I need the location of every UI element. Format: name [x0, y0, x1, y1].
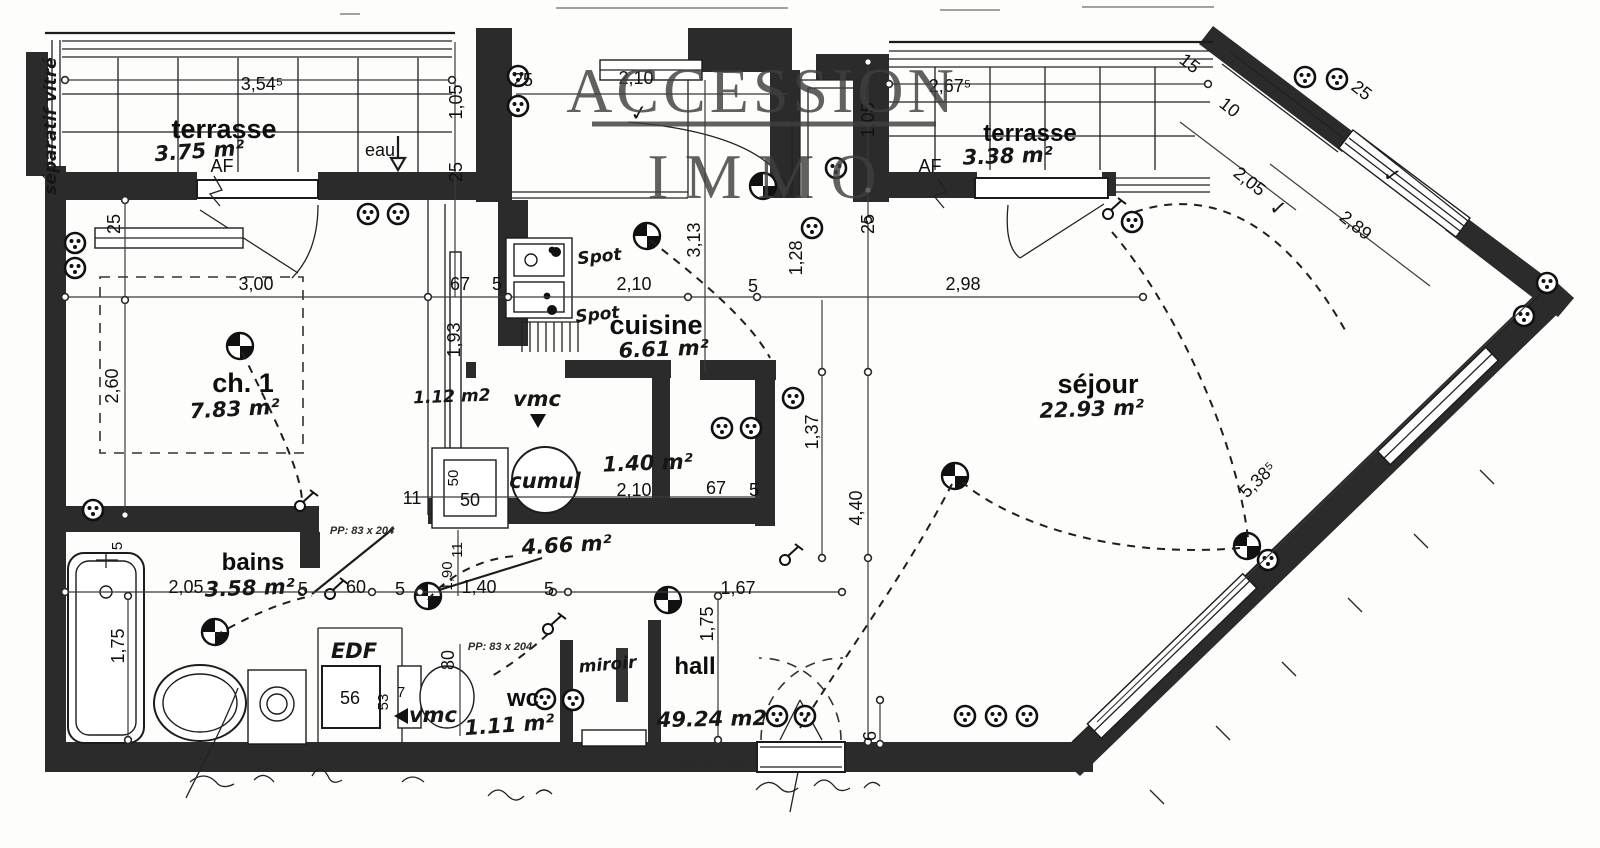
dim-diag-15: 15: [1176, 49, 1204, 77]
socket-icon: [741, 418, 761, 438]
dim-gaine-50b: 50: [445, 470, 462, 487]
ceiling-light-icon: [227, 333, 253, 359]
dim-ch1-width: 3,00: [238, 274, 273, 294]
area-degagement: 4.66 m²: [520, 531, 613, 560]
dim-k5: 5: [748, 276, 758, 296]
ceiling-light-icon: [202, 619, 228, 645]
switch-icon: [780, 544, 803, 565]
socket-icon: [388, 204, 408, 224]
socket-icon: [783, 388, 803, 408]
watermark-line2: IMMO: [647, 141, 892, 212]
dim-edf-53: 53: [375, 694, 392, 711]
dim-193: 1,93: [444, 322, 464, 357]
dim-105-left: 1,05: [446, 84, 466, 119]
dim-low-210: 2,10: [616, 480, 651, 500]
hall-shelf: [582, 730, 646, 746]
spot-light-2: [547, 305, 557, 315]
radiator-sejour-low: [1087, 574, 1256, 738]
dim-kitchen-width: 2,10: [616, 274, 651, 294]
dim-b60: 60: [346, 577, 366, 597]
floorplan-drawing: 3,54⁵ 25 2,10 2,67⁵ 1,05 25 1,05 25 15 2…: [0, 0, 1600, 848]
dim-6: 6: [860, 731, 880, 741]
socket-icon: [986, 706, 1006, 726]
dim-gaine-50: 50: [460, 490, 480, 510]
note-af-right: AF: [918, 156, 941, 176]
socket-icon: [65, 233, 85, 253]
note-separatif-vitre: séparatif vitré: [41, 57, 61, 195]
socket-icon: [712, 418, 732, 438]
dim-wc-80: 80: [438, 650, 458, 670]
area-sejour: 22.93 m²: [1039, 395, 1145, 423]
dim-hall-175: 1,75: [697, 606, 717, 641]
socket-icon: [1537, 273, 1557, 293]
area-bains: 3.58 m²: [204, 574, 296, 601]
note-spot-1: Spot: [576, 245, 623, 270]
dim-5: 5: [492, 274, 502, 294]
note-pp83-bains: PP: 83 x 204: [330, 525, 394, 537]
floorplan-scan: 3,54⁵ 25 2,10 2,67⁵ 1,05 25 1,05 25 15 2…: [0, 0, 1600, 848]
note-vmc-cuisine: vmc: [513, 387, 562, 411]
dim-gaine-11: 11: [403, 488, 422, 508]
spot-light-1: [551, 247, 561, 257]
dim-corr-5: 5: [544, 579, 554, 599]
socket-icon: [508, 96, 528, 116]
socket-icon: [65, 258, 85, 278]
area-placard: 1.12 m2: [413, 386, 491, 409]
note-pp83-wc: PP: 83 x 204: [468, 641, 532, 653]
dim-25-left: 25: [446, 162, 466, 182]
socket-icon: [1017, 706, 1037, 726]
dim-diag-289: 2,89: [1336, 207, 1376, 244]
dim-wc-190: 1,90: [439, 561, 456, 590]
dim-ch1-25: 25: [104, 214, 124, 234]
label-ch1: ch. 1: [212, 368, 274, 398]
dim-corr-140: 1,40: [461, 577, 496, 597]
socket-icon: [358, 204, 378, 224]
socket-icon: [1258, 550, 1278, 570]
note-eau: eau: [365, 140, 395, 160]
dim-b5b: 5: [395, 579, 405, 599]
dim-ch1-height: 2,60: [102, 368, 122, 403]
dim-sejour-298: 2,98: [945, 274, 980, 294]
dim-137: 1,37: [802, 414, 822, 449]
area-hall: 49.24 m2: [656, 706, 768, 732]
label-sejour: séjour: [1057, 369, 1139, 399]
dim-bains-175: 1,75: [108, 628, 128, 663]
bed-outline: [100, 277, 303, 453]
dim-diag-205: 2,05: [1230, 163, 1270, 200]
scan-edge-lines: [340, 7, 1214, 14]
ceiling-light-icon: [942, 463, 968, 489]
note-miroir: miroir: [578, 652, 639, 677]
dim-b5a: 5: [298, 579, 308, 599]
socket-icon: [1295, 67, 1315, 87]
note-pp93-entrance: PP: 93 x 204: [680, 758, 744, 770]
kitchen-radiator: [520, 322, 580, 352]
area-terrasse-right: 3.38 m²: [962, 142, 1054, 169]
label-hall: hall: [674, 653, 715, 680]
dim-25: 25: [513, 70, 533, 90]
ceiling-light-icon: [634, 223, 660, 249]
switch-icon: [543, 613, 566, 634]
dim-terrasse-left-width: 3,54⁵: [241, 74, 284, 94]
socket-icon: [795, 706, 815, 726]
radiator-sejour-high: [1378, 347, 1498, 464]
area-wc: 1.11 m²: [464, 710, 556, 740]
fixtures: [68, 136, 1498, 804]
area-cuisine: 6.61 m²: [618, 335, 710, 362]
dim-edf-56: 56: [340, 688, 360, 708]
socket-icon: [83, 500, 103, 520]
ceiling-light-icon: [655, 587, 681, 613]
dim-440: 4,40: [846, 490, 866, 525]
door-terrasse-right: [975, 178, 1108, 198]
socket-icon: [955, 706, 975, 726]
label-bains: bains: [222, 549, 285, 576]
note-edf: EDF: [331, 639, 378, 663]
socket-icon: [1327, 69, 1347, 89]
dim-edf-7: 7: [397, 684, 405, 701]
dim-313: 3,13: [684, 222, 704, 257]
dim-128: 1,28: [786, 240, 806, 275]
dim-diag-5385: 5,38⁵: [1236, 458, 1280, 502]
socket-icon: [767, 706, 787, 726]
note-af-left: AF: [210, 156, 233, 176]
dim-low-67: 67: [706, 478, 726, 498]
dim-diag-25: 25: [1348, 76, 1376, 104]
dim-bains-205: 2,05: [168, 577, 203, 597]
dim-25-right: 25: [858, 214, 878, 234]
dim-67: 67: [450, 274, 470, 294]
socket-icon: [563, 690, 583, 710]
dim-bains-5top: 5: [109, 542, 126, 550]
door-terrasse-left: [197, 180, 318, 198]
socket-icon: [802, 218, 822, 238]
dim-gaine-11b: 11: [449, 542, 466, 558]
dim-corr-167: 1,67: [720, 578, 755, 598]
note-vmc-bains: vmc: [409, 703, 458, 727]
dim-low-5: 5: [749, 480, 759, 500]
area-cellier: 1.40 m²: [602, 449, 694, 476]
area-ch1: 7.83 m²: [189, 395, 281, 424]
socket-icon: [1122, 212, 1142, 232]
socket-icon: [1514, 306, 1534, 326]
checkmark: ✓: [1267, 195, 1289, 222]
watermark-line1: ACCESSION: [566, 55, 958, 126]
dim-diag-10: 10: [1216, 93, 1244, 121]
label-wc: wc: [506, 685, 539, 712]
note-cumul: cumul: [509, 469, 581, 493]
